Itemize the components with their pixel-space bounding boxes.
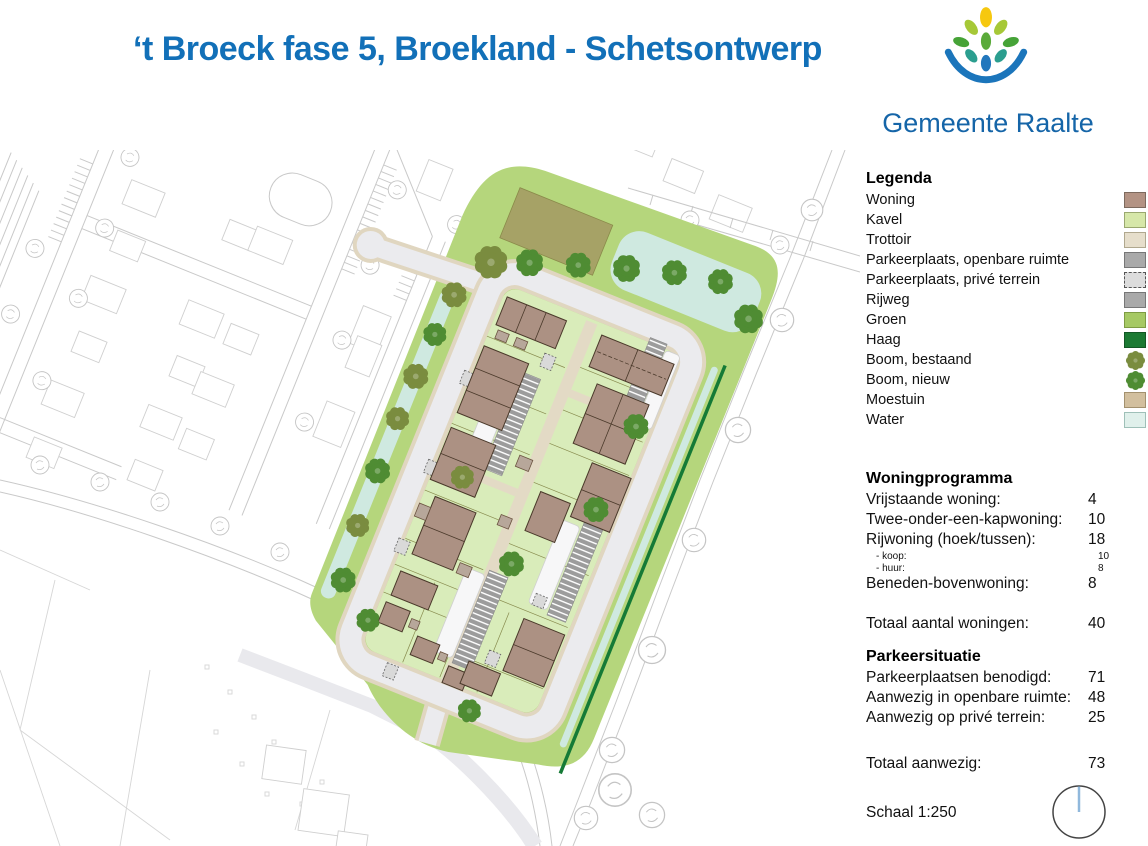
legend-swatch-kavel — [1124, 212, 1146, 228]
parking-value: 25 — [1088, 709, 1146, 727]
program-value: 18 — [1088, 531, 1146, 549]
legend-row-boom-bestaand: Boom, bestaand — [866, 350, 1146, 370]
program-label: Rijwoning (hoek/tussen): — [866, 531, 1088, 549]
leaf-lightgreen-icon — [962, 17, 981, 37]
org-name: Gemeente Raalte — [874, 108, 1102, 139]
leaf-yellow-icon — [980, 7, 992, 27]
leaf-blue-icon — [981, 55, 991, 72]
program-row: Vrijstaande woning:4 — [866, 490, 1146, 510]
legend-label: Moestuin — [866, 392, 1124, 408]
leaf-center-icon — [981, 32, 991, 49]
parking-label: Parkeerplaatsen benodigd: — [866, 669, 1088, 687]
legend-swatch-woning — [1124, 192, 1146, 208]
legend-swatch-rijweg — [1124, 292, 1146, 308]
program-sublabel: - koop: — [866, 551, 1098, 562]
legend-label: Haag — [866, 332, 1124, 348]
logo-leaves — [952, 7, 1020, 71]
parking-total-label: Totaal aanwezig: — [866, 755, 1088, 773]
legend-row-parkeer-prive: Parkeerplaats, privé terrein — [866, 270, 1146, 290]
program-subvalue: 8 — [1098, 563, 1146, 574]
program-value: 10 — [1088, 511, 1146, 529]
legend-label: Water — [866, 412, 1124, 428]
program-subrow: - koop:10 — [866, 550, 1146, 562]
program-value: 4 — [1088, 491, 1146, 509]
boom-bestaand-icon — [1125, 350, 1146, 371]
program-subvalue: 10 — [1098, 551, 1146, 562]
program-row: Twee-onder-een-kapwoning:10 — [866, 510, 1146, 530]
page-title: ‘t Broeck fase 5, Broekland - Schetsontw… — [133, 30, 822, 69]
scale-label: Schaal 1:250 — [866, 804, 957, 822]
legend-swatch-haag — [1124, 332, 1146, 348]
legend-row-boom-nieuw: Boom, nieuw — [866, 370, 1146, 390]
program-total-value: 40 — [1088, 615, 1146, 633]
program-row: Rijwoning (hoek/tussen):18 — [866, 530, 1146, 550]
legend-row-kavel: Kavel — [866, 210, 1146, 230]
parking-row: Aanwezig op privé terrein:25 — [866, 708, 1146, 728]
boom-nieuw-icon — [1125, 370, 1146, 391]
legend-label: Boom, bestaand — [866, 352, 1125, 368]
north-arrow — [1048, 781, 1110, 843]
legend-swatch-parkeer-openbaar — [1124, 252, 1146, 268]
field-boundary-lines — [0, 550, 330, 846]
parking-value: 71 — [1088, 669, 1146, 687]
legend-label: Boom, nieuw — [866, 372, 1125, 388]
program-total-label: Totaal aantal woningen: — [866, 615, 1088, 633]
legend-label: Parkeerplaats, privé terrein — [866, 272, 1124, 288]
legend: Legenda Woning Kavel Trottoir Parkeerpla… — [866, 170, 1146, 430]
woningprogramma-title: Woningprogramma — [866, 470, 1146, 490]
legend-row-trottoir: Trottoir — [866, 230, 1146, 250]
leaf-teal-icon — [963, 47, 980, 65]
legend-row-water: Water — [866, 410, 1146, 430]
legend-row-groen: Groen — [866, 310, 1146, 330]
parking-row: Parkeerplaatsen benodigd:71 — [866, 668, 1146, 688]
site-plan-map — [0, 150, 860, 846]
legend-row-woning: Woning — [866, 190, 1146, 210]
legend-row-haag: Haag — [866, 330, 1146, 350]
program-row: Beneden-bovenwoning:8 — [866, 574, 1146, 594]
parking-row: Aanwezig in openbare ruimte:48 — [866, 688, 1146, 708]
parking-label: Aanwezig in openbare ruimte: — [866, 689, 1088, 707]
legend-swatch-moestuin — [1124, 392, 1146, 408]
gemeente-raalte-logo — [940, 4, 1032, 104]
legend-label: Woning — [866, 192, 1124, 208]
parkeersituatie-title: Parkeersituatie — [866, 648, 1146, 668]
program-label: Beneden-bovenwoning: — [866, 575, 1088, 593]
legend-row-parkeer-openbaar: Parkeerplaats, openbare ruimte — [866, 250, 1146, 270]
leaf-green-icon — [1002, 35, 1021, 49]
legend-swatch-groen — [1124, 312, 1146, 328]
legend-swatch-parkeer-prive — [1124, 272, 1146, 288]
parkeersituatie: Parkeersituatie Parkeerplaatsen benodigd… — [866, 648, 1146, 774]
legend-title: Legenda — [866, 170, 1146, 190]
parking-value: 48 — [1088, 689, 1146, 707]
legend-swatch-water — [1124, 412, 1146, 428]
legend-label: Trottoir — [866, 232, 1124, 248]
parking-label: Aanwezig op privé terrein: — [866, 709, 1088, 727]
program-sublabel: - huur: — [866, 563, 1098, 574]
leaf-lightgreen-icon — [991, 17, 1010, 37]
program-total-row: Totaal aantal woningen:40 — [866, 614, 1146, 634]
legend-row-rijweg: Rijweg — [866, 290, 1146, 310]
field-buildings — [253, 745, 378, 846]
program-subrow: - huur:8 — [866, 562, 1146, 574]
parking-total-value: 73 — [1088, 755, 1146, 773]
woningprogramma: Woningprogramma Vrijstaande woning:4 Twe… — [866, 470, 1146, 634]
legend-label: Rijweg — [866, 292, 1124, 308]
leaf-teal-icon — [992, 47, 1009, 65]
program-value: 8 — [1088, 575, 1146, 593]
program-label: Twee-onder-een-kapwoning: — [866, 511, 1088, 529]
legend-swatch-trottoir — [1124, 232, 1146, 248]
legend-label: Kavel — [866, 212, 1124, 228]
parking-total-row: Totaal aanwezig:73 — [866, 754, 1146, 774]
legend-label: Groen — [866, 312, 1124, 328]
legend-row-moestuin: Moestuin — [866, 390, 1146, 410]
leaf-green-icon — [952, 35, 971, 49]
program-label: Vrijstaande woning: — [866, 491, 1088, 509]
legend-label: Parkeerplaats, openbare ruimte — [866, 252, 1124, 268]
